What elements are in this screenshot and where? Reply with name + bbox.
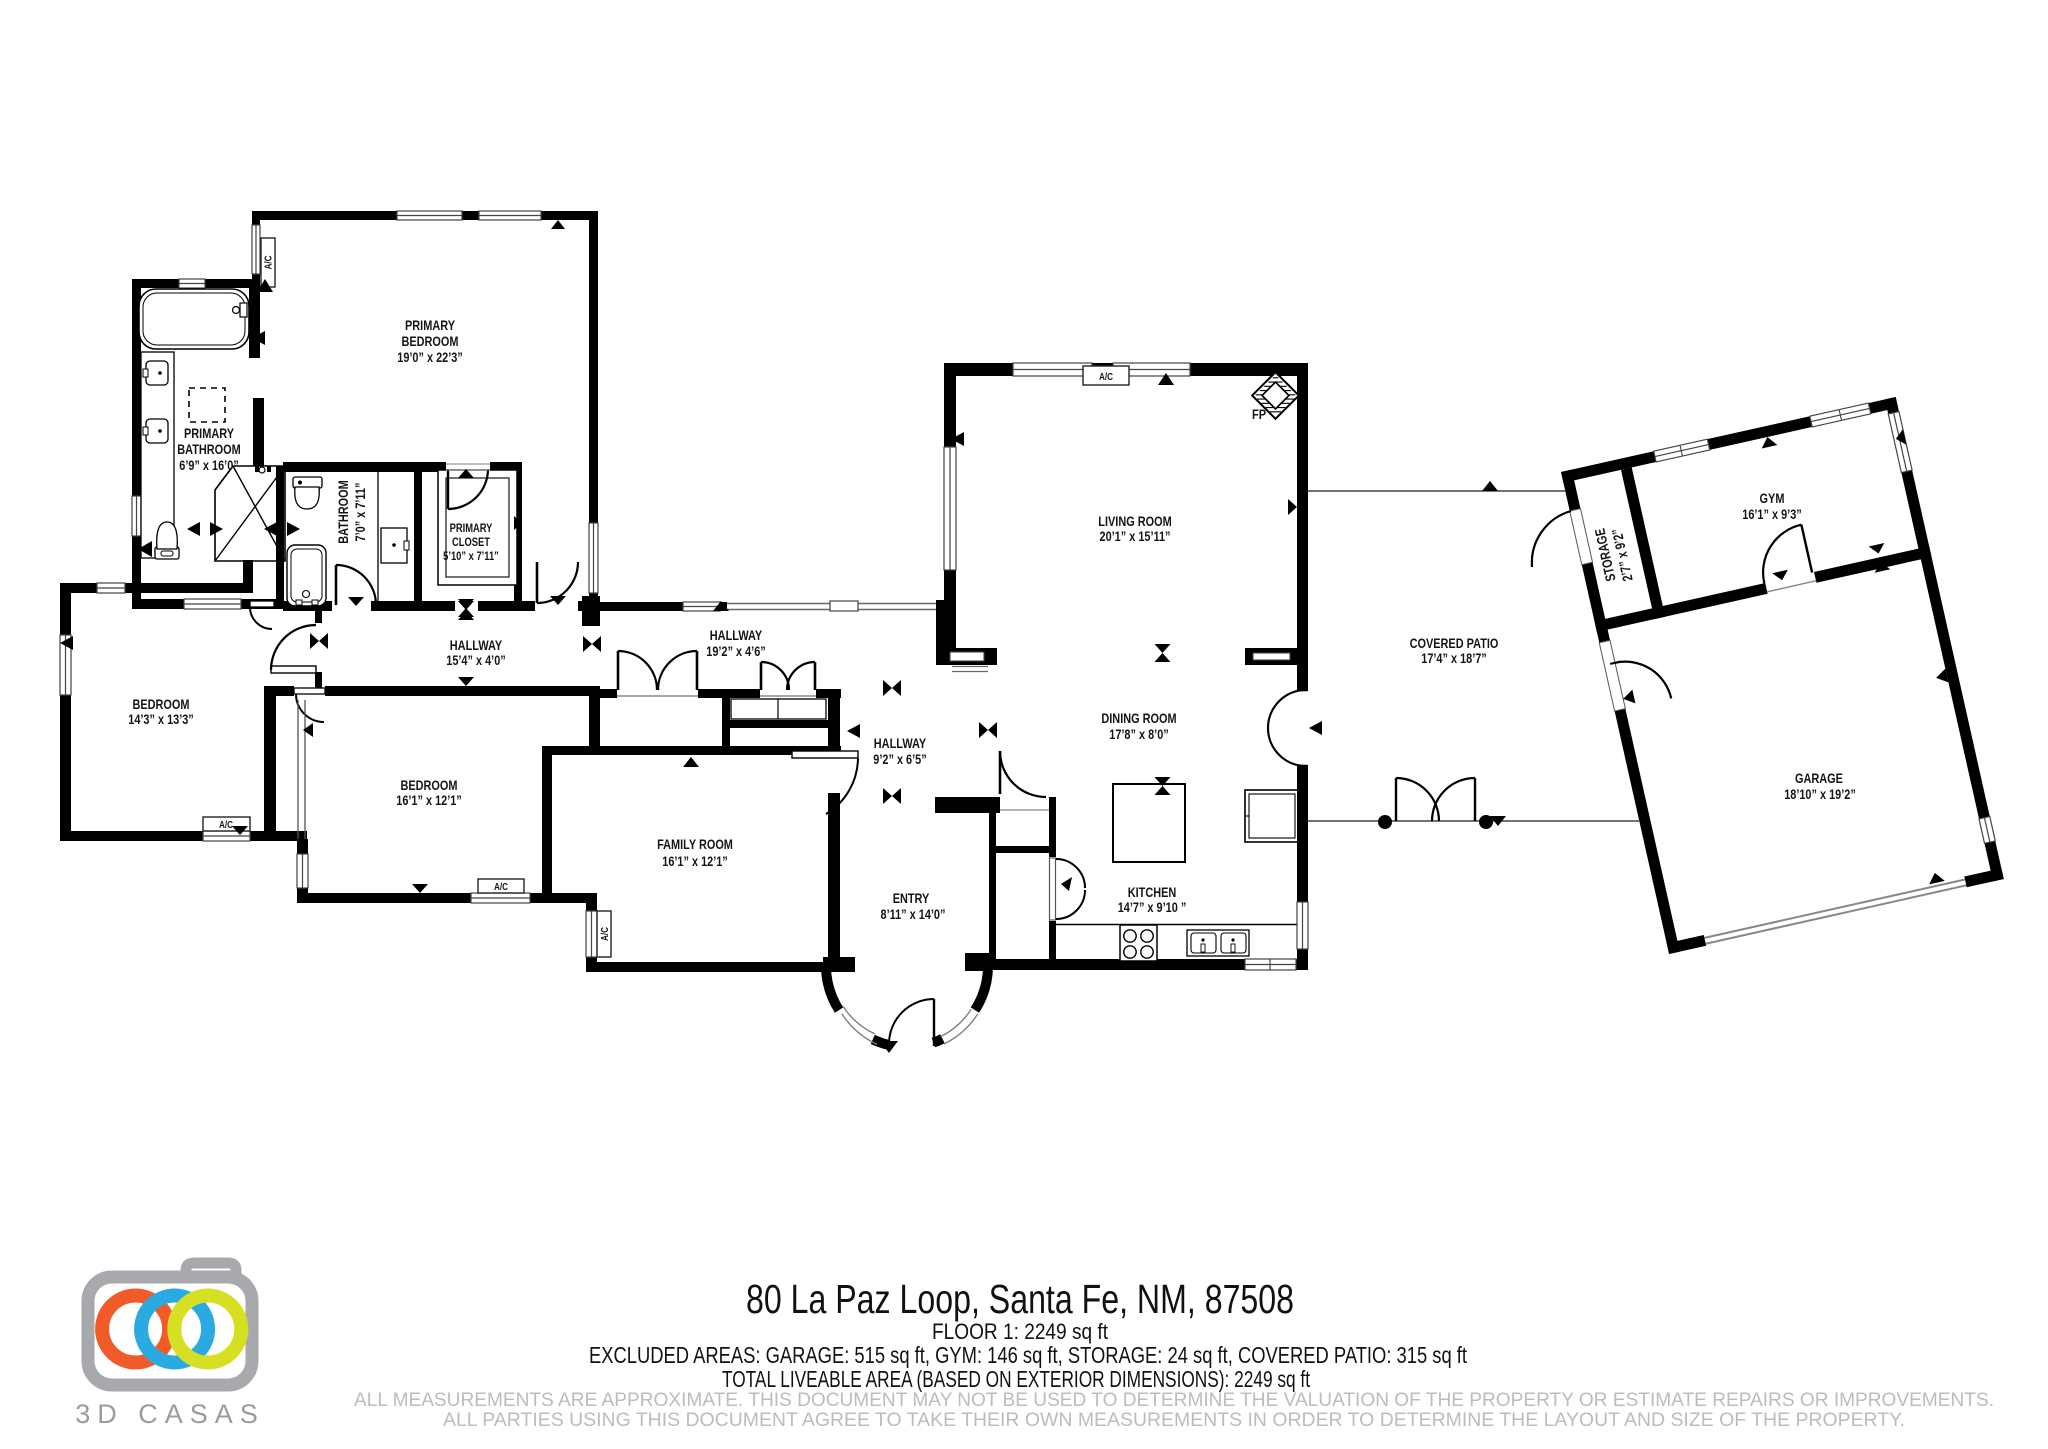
- svg-text:6’9” x 16’0”: 6’9” x 16’0”: [179, 457, 239, 473]
- svg-text:20’1” x 15’11”: 20’1” x 15’11”: [1100, 528, 1171, 544]
- svg-text:7’0” x 7’11”: 7’0” x 7’11”: [352, 483, 368, 542]
- svg-text:PRIMARY: PRIMARY: [405, 317, 456, 333]
- svg-text:HALLWAY: HALLWAY: [710, 627, 763, 643]
- svg-text:ALL MEASUREMENTS ARE APPROXIMA: ALL MEASUREMENTS ARE APPROXIMATE. THIS D…: [354, 1389, 1994, 1411]
- svg-text:BATHROOM: BATHROOM: [335, 480, 351, 544]
- svg-text:17’8” x 8’0”: 17’8” x 8’0”: [1109, 726, 1169, 742]
- svg-text:17’4” x 18’7”: 17’4” x 18’7”: [1421, 650, 1487, 666]
- svg-text:A/C: A/C: [263, 255, 275, 269]
- svg-text:A/C: A/C: [599, 927, 611, 941]
- svg-text:ENTRY: ENTRY: [893, 890, 930, 906]
- svg-text:19’0” x 22’3”: 19’0” x 22’3”: [397, 349, 463, 365]
- svg-text:PRIMARY: PRIMARY: [450, 521, 493, 535]
- svg-text:FLOOR 1: 2249 sq ft: FLOOR 1: 2249 sq ft: [932, 1319, 1108, 1344]
- svg-text:18’10” x 19’2”: 18’10” x 19’2”: [1784, 786, 1856, 802]
- svg-text:80 La Paz Loop, Santa Fe, NM,: 80 La Paz Loop, Santa Fe, NM, 87508: [746, 1276, 1294, 1322]
- svg-text:DINING ROOM: DINING ROOM: [1101, 710, 1176, 726]
- svg-text:LIVING ROOM: LIVING ROOM: [1098, 513, 1171, 529]
- svg-text:5’10” x 7’11”: 5’10” x 7’11”: [443, 549, 499, 563]
- svg-text:HALLWAY: HALLWAY: [874, 735, 927, 751]
- svg-text:KITCHEN: KITCHEN: [1128, 884, 1177, 900]
- svg-text:FAMILY ROOM: FAMILY ROOM: [657, 836, 733, 852]
- svg-text:8’11” x 14’0”: 8’11” x 14’0”: [881, 906, 946, 922]
- svg-text:FP: FP: [1252, 406, 1266, 422]
- svg-text:15’4” x 4’0”: 15’4” x 4’0”: [446, 652, 506, 668]
- svg-text:A/C: A/C: [1099, 371, 1113, 383]
- svg-text:16’1” x 9’3”: 16’1” x 9’3”: [1742, 506, 1802, 522]
- svg-text:BEDROOM: BEDROOM: [401, 777, 458, 793]
- svg-text:GYM: GYM: [1760, 490, 1785, 506]
- svg-text:A/C: A/C: [219, 819, 233, 831]
- svg-text:GARAGE: GARAGE: [1795, 770, 1843, 786]
- svg-text:16’1” x 12’1”: 16’1” x 12’1”: [662, 853, 728, 869]
- svg-text:EXCLUDED AREAS: GARAGE: 515 sq: EXCLUDED AREAS: GARAGE: 515 sq ft, GYM: …: [589, 1342, 1467, 1368]
- svg-text:A/C: A/C: [494, 881, 508, 893]
- svg-text:BEDROOM: BEDROOM: [133, 696, 190, 712]
- svg-text:9’2” x 6’5”: 9’2” x 6’5”: [873, 751, 926, 767]
- svg-text:16’1” x 12’1”: 16’1” x 12’1”: [396, 792, 462, 808]
- svg-text:ALL PARTIES USING THIS DOCUMEN: ALL PARTIES USING THIS DOCUMENT AGREE TO…: [443, 1409, 1905, 1431]
- svg-text:HALLWAY: HALLWAY: [450, 637, 503, 653]
- svg-text:COVERED PATIO: COVERED PATIO: [1410, 635, 1499, 651]
- svg-text:14’7” x 9’10 ”: 14’7” x 9’10 ”: [1118, 899, 1187, 915]
- svg-text:CLOSET: CLOSET: [452, 535, 491, 549]
- svg-text:14’3” x 13’3”: 14’3” x 13’3”: [128, 711, 194, 727]
- svg-text:19’2” x 4’6”: 19’2” x 4’6”: [706, 643, 766, 659]
- svg-text:BATHROOM: BATHROOM: [177, 441, 241, 457]
- svg-text:BEDROOM: BEDROOM: [402, 333, 459, 349]
- svg-text:PRIMARY: PRIMARY: [184, 425, 235, 441]
- svg-text:3D CASAS: 3D CASAS: [75, 1399, 265, 1429]
